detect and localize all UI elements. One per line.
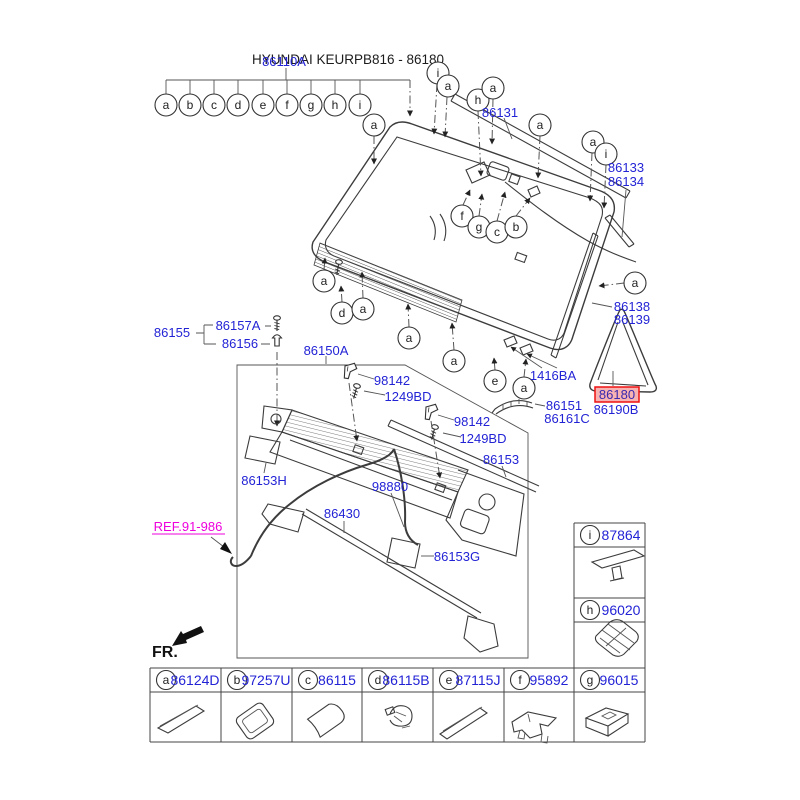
part-label-86153G[interactable]: 86153G <box>434 549 480 564</box>
callout-circle: f <box>276 94 298 116</box>
callout-circle: a <box>313 270 335 292</box>
svg-text:96020[interactable]: 96020 <box>602 602 641 618</box>
svg-text:h: h <box>587 603 594 617</box>
part-label-86134[interactable]: 86134 <box>608 174 644 189</box>
callout-circle: a <box>352 298 374 320</box>
svg-text:i: i <box>437 66 440 80</box>
svg-text:a: a <box>451 354 458 368</box>
svg-text:b: b <box>513 220 520 234</box>
ref-link[interactable]: REF.91-986 <box>154 519 223 534</box>
svg-text:a: a <box>163 98 170 112</box>
diagram-svg: HYUNDAI KEURPB816 - 86180 86110A a b c d… <box>0 0 800 800</box>
callout-circle: a <box>155 94 177 116</box>
svg-text:c: c <box>211 98 217 112</box>
svg-text:e: e <box>446 673 453 687</box>
part-label-86157A[interactable]: 86157A <box>216 318 261 333</box>
svg-text:c: c <box>494 225 500 239</box>
svg-text:a: a <box>632 276 639 290</box>
callout-circle: c <box>486 221 508 243</box>
svg-text:h: h <box>332 98 339 112</box>
callout-circle: d <box>331 302 353 324</box>
part-label-98880[interactable]: 98880 <box>372 479 408 494</box>
part-label-1249BD-2[interactable]: 1249BD <box>460 431 507 446</box>
callout-circle: c <box>203 94 225 116</box>
part-label-86190B[interactable]: 86190B <box>594 402 639 417</box>
svg-text:d: d <box>339 306 346 320</box>
svg-text:96015[interactable]: 96015 <box>600 672 639 688</box>
part-label-86156[interactable]: 86156 <box>222 336 258 351</box>
highlighted-part-86180[interactable]: 86180 <box>595 387 639 402</box>
callout-circle: d <box>227 94 249 116</box>
callout-circle: b <box>179 94 201 116</box>
part-label-86150A[interactable]: 86150A <box>304 343 349 358</box>
part-label-98142-2[interactable]: 98142 <box>454 414 490 429</box>
svg-text:a: a <box>360 302 367 316</box>
svg-text:a: a <box>445 79 452 93</box>
svg-text:86124D[interactable]: 86124D <box>170 672 219 688</box>
svg-text:g: g <box>308 98 315 112</box>
callout-row: a b c d e f g h i <box>155 94 371 116</box>
svg-text:g: g <box>476 220 483 234</box>
svg-text:a: a <box>371 118 378 132</box>
svg-text:b: b <box>187 98 194 112</box>
svg-text:i: i <box>589 528 592 542</box>
callout-circle: e <box>252 94 274 116</box>
part-label-86161C[interactable]: 86161C <box>544 411 590 426</box>
part-label-86133[interactable]: 86133 <box>608 160 644 175</box>
callout-circle: a <box>437 75 459 97</box>
callout-circle: a <box>624 272 646 294</box>
callout-circle: a <box>398 327 420 349</box>
svg-text:86180[interactable]: 86180 <box>599 387 635 402</box>
part-label-86110A[interactable]: 86110A <box>262 54 306 69</box>
callout-circle: a <box>443 350 465 372</box>
svg-text:a: a <box>537 118 544 132</box>
callout-circle: e <box>484 370 506 392</box>
svg-text:h: h <box>475 93 482 107</box>
callout-circle: a <box>363 114 385 136</box>
callout-circle: b <box>505 216 527 238</box>
svg-text:b: b <box>234 673 241 687</box>
part-label-86430[interactable]: 86430 <box>324 506 360 521</box>
svg-text:95892[interactable]: 95892 <box>530 672 569 688</box>
svg-text:e: e <box>260 98 267 112</box>
fr-label: FR. <box>152 644 178 661</box>
part-label-1249BD[interactable]: 1249BD <box>385 389 432 404</box>
callout-circle: g <box>300 94 322 116</box>
callout-circle: h <box>324 94 346 116</box>
svg-text:86115B[interactable]: 86115B <box>382 672 429 688</box>
part-label-86153[interactable]: 86153 <box>483 452 519 467</box>
svg-text:d: d <box>235 98 242 112</box>
svg-text:c: c <box>305 673 311 687</box>
svg-text:a: a <box>590 135 597 149</box>
part-label-98142[interactable]: 98142 <box>374 373 410 388</box>
svg-text:i: i <box>359 98 362 112</box>
part-label-86155[interactable]: 86155 <box>154 325 190 340</box>
part-label-86139[interactable]: 86139 <box>614 312 650 327</box>
parts-diagram-page: HYUNDAI KEURPB816 - 86180 86110A a b c d… <box>0 0 800 800</box>
svg-text:a: a <box>321 274 328 288</box>
svg-text:a: a <box>521 381 528 395</box>
svg-text:a: a <box>490 81 497 95</box>
part-label-1416BA[interactable]: 1416BA <box>530 368 577 383</box>
svg-text:a: a <box>406 331 413 345</box>
svg-text:e: e <box>492 374 499 388</box>
part-label-86131[interactable]: 86131 <box>482 105 518 120</box>
svg-text:87115J[interactable]: 87115J <box>456 672 501 688</box>
svg-text:a: a <box>163 673 170 687</box>
svg-text:d: d <box>375 673 382 687</box>
svg-text:87864[interactable]: 87864 <box>602 527 641 543</box>
svg-text:i: i <box>605 147 608 161</box>
callout-circle: a <box>482 77 504 99</box>
callout-circle: a <box>529 114 551 136</box>
svg-text:86115[interactable]: 86115 <box>318 672 356 688</box>
svg-text:97257U[interactable]: 97257U <box>241 672 290 688</box>
svg-text:g: g <box>587 673 594 687</box>
callout-circle: i <box>349 94 371 116</box>
part-label-86153H[interactable]: 86153H <box>241 473 287 488</box>
